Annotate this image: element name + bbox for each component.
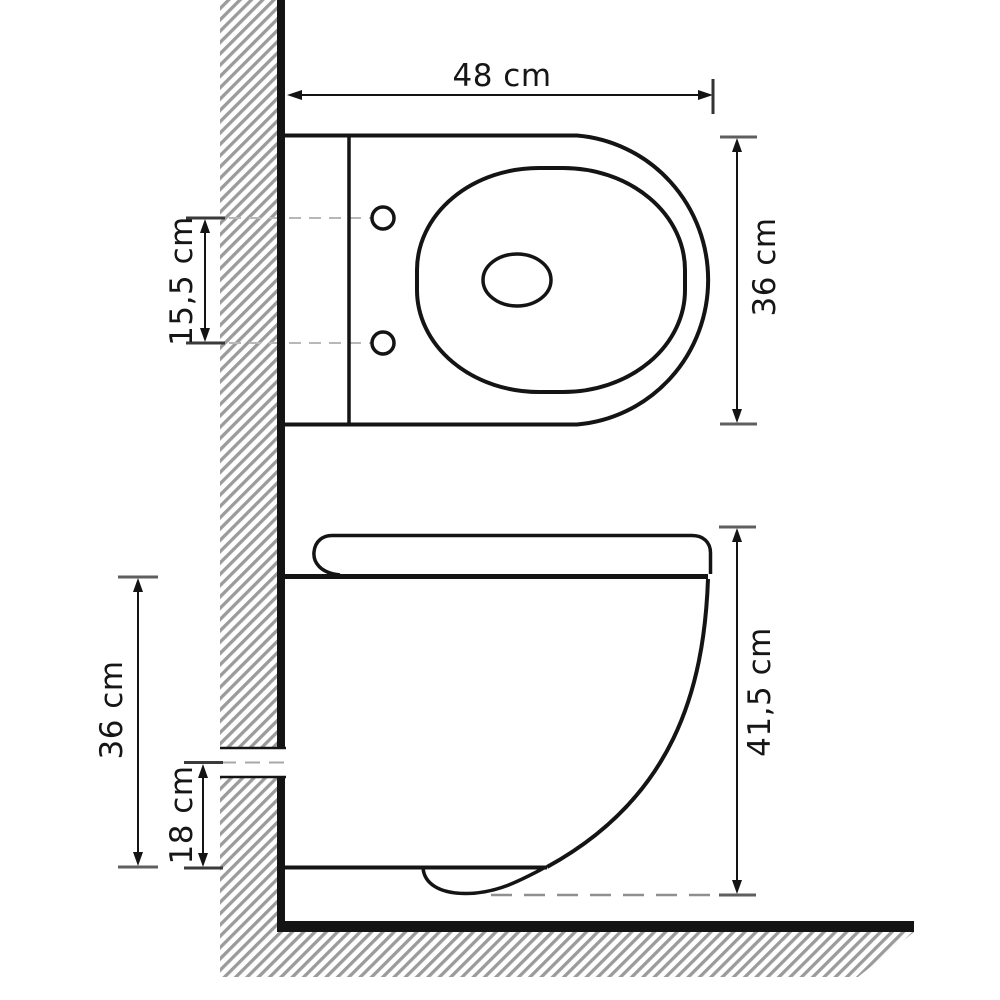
arrow-down [200,328,210,342]
toilet-dimension-diagram: 48 cm 36 cm 15,5 cm 36 cm 18 cm [0,0,1000,1000]
arrow-right [698,90,713,100]
arrow-down [133,852,143,866]
floor-line [277,921,914,932]
dim-top-width-label: 48 cm [452,58,551,94]
arrow-down [732,880,742,894]
dim-hole-spacing-label: 15,5 cm [164,216,200,346]
bowl-back-curve [547,579,708,867]
mounting-hole-bottom [372,332,394,354]
arrow-up [732,528,742,542]
dim-top-depth-label: 36 cm [747,217,783,316]
side-view [285,536,753,896]
arrow-left [287,90,302,100]
arrow-up [200,219,210,233]
dim-inlet-height-label: 18 cm [164,765,200,864]
dim-top-depth: 36 cm [720,137,783,424]
dim-top-width: 48 cm [287,58,713,114]
dim-side-body-height-label: 36 cm [94,660,130,759]
mounting-hole-top [372,207,394,229]
dim-inlet-height: 18 cm [164,763,223,869]
arrow-up [133,578,143,592]
top-view [285,135,708,425]
dim-side-total-height: 41,5 cm [719,527,778,895]
arrow-down [732,409,742,423]
dim-side-total-height-label: 41,5 cm [742,627,778,757]
wall-floor-hatch [220,0,914,977]
drain-hole [483,254,551,306]
lid-outline [314,536,711,576]
diagram-canvas: 48 cm 36 cm 15,5 cm 36 cm 18 cm [0,0,1000,1000]
outlet-bump [423,868,544,894]
wall-face-line [277,0,285,932]
dim-hole-spacing: 15,5 cm [164,216,225,346]
dim-side-body-height: 36 cm [94,577,158,867]
arrow-up [732,138,742,152]
